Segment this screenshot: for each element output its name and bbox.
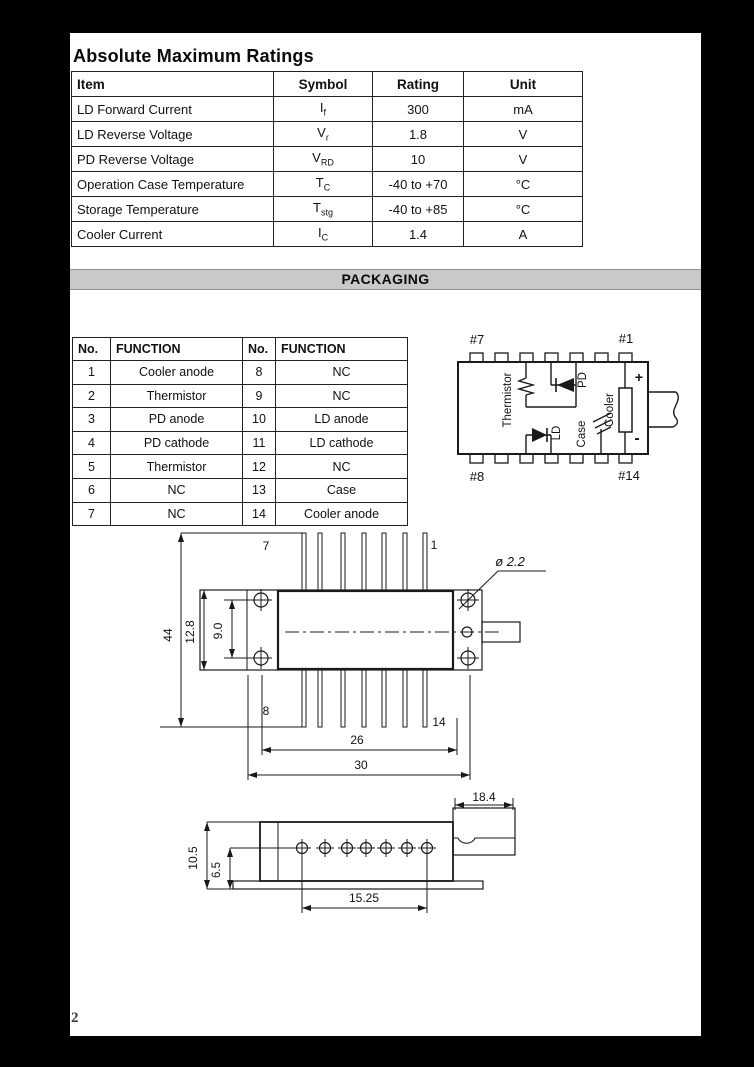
- pin-fn-cell: NC: [111, 502, 243, 526]
- cooler-plus-label: +: [635, 369, 643, 385]
- pin-function-table: No. FUNCTION No. FUNCTION 1 Cooler anode…: [72, 337, 408, 526]
- pin-no-cell: 2: [73, 384, 111, 408]
- pin-no-cell: 5: [73, 455, 111, 479]
- symbol-cell: TC: [274, 172, 373, 197]
- dimension-12-8: 12.8: [183, 590, 204, 670]
- dimension-15-25: 15.25: [302, 854, 427, 913]
- fiber-pigtail: [648, 392, 678, 427]
- ratings-header-symbol: Symbol: [274, 72, 373, 97]
- packaging-section-header: PACKAGING: [70, 269, 701, 290]
- pin-no-cell: 3: [73, 408, 111, 432]
- pin-no-cell: 4: [73, 431, 111, 455]
- dimension-26: 26: [262, 675, 457, 755]
- symbol-cell: IC: [274, 222, 373, 247]
- rating-cell: 1.4: [373, 222, 464, 247]
- unit-cell: °C: [464, 197, 583, 222]
- svg-text:9.0: 9.0: [211, 622, 225, 639]
- package-side-view-drawing: 18.4 10.5 6.5 15.25: [180, 788, 520, 918]
- pin-table-header-row: No. FUNCTION No. FUNCTION: [73, 338, 408, 361]
- ratings-title: Absolute Maximum Ratings: [73, 46, 314, 67]
- pin8-number-label: 8: [263, 704, 270, 718]
- table-row: LD Forward Current If 300 mA: [72, 97, 583, 122]
- package-top-view-drawing: 7 1 8 14 44 12.8 9.0 ø 2.2 2: [160, 525, 550, 785]
- dimension-18-4: 18.4: [455, 790, 513, 810]
- pin-header-no2: No.: [243, 338, 276, 361]
- document-page: Absolute Maximum Ratings Item Symbol Rat…: [70, 33, 701, 1036]
- pin-no-cell: 1: [73, 361, 111, 385]
- pin-fn-cell: Thermistor: [111, 384, 243, 408]
- pin-no-cell: 6: [73, 478, 111, 502]
- pin-fn-cell: LD cathode: [276, 431, 408, 455]
- table-row: 7 NC 14 Cooler anode: [73, 502, 408, 526]
- pin-no-cell: 9: [243, 384, 276, 408]
- pin-fn-cell: NC: [276, 361, 408, 385]
- svg-text:15.25: 15.25: [349, 891, 379, 905]
- pin-fn-cell: PD anode: [111, 408, 243, 432]
- pin-fn-cell: NC: [111, 478, 243, 502]
- svg-text:26: 26: [350, 733, 364, 747]
- bottom-pins: [302, 669, 427, 727]
- item-cell: Operation Case Temperature: [72, 172, 274, 197]
- pin-fn-cell: NC: [276, 455, 408, 479]
- pin-no-cell: 11: [243, 431, 276, 455]
- pin1-number-label: 1: [431, 538, 438, 552]
- svg-text:44: 44: [161, 628, 175, 642]
- unit-cell: V: [464, 122, 583, 147]
- pin-header-fn1: FUNCTION: [111, 338, 243, 361]
- table-row: 2 Thermistor 9 NC: [73, 384, 408, 408]
- svg-text:6.5: 6.5: [211, 862, 223, 878]
- item-cell: LD Reverse Voltage: [72, 122, 274, 147]
- svg-text:30: 30: [354, 758, 368, 772]
- table-row: Operation Case Temperature TC -40 to +70…: [72, 172, 583, 197]
- dimension-9-0: 9.0: [211, 600, 252, 658]
- table-row: 5 Thermistor 12 NC: [73, 455, 408, 479]
- pin8-corner-label: #8: [470, 469, 484, 484]
- pd-label: PD: [577, 372, 589, 388]
- table-row: 4 PD cathode 11 LD cathode: [73, 431, 408, 455]
- svg-text:10.5: 10.5: [186, 846, 200, 870]
- unit-cell: mA: [464, 97, 583, 122]
- item-cell: PD Reverse Voltage: [72, 147, 274, 172]
- pin7-corner-label: #7: [470, 332, 484, 347]
- ratings-table: Item Symbol Rating Unit LD Forward Curre…: [71, 71, 583, 247]
- pin14-corner-label: #14: [618, 468, 640, 483]
- thermistor-label: Thermistor: [502, 372, 514, 427]
- table-row: 1 Cooler anode 8 NC: [73, 361, 408, 385]
- pinout-schematic-diagram: #7 #1 #8 #14 Thermistor PD LD: [450, 328, 700, 488]
- table-row: 6 NC 13 Case: [73, 478, 408, 502]
- dimension-6-5: 6.5: [211, 848, 296, 889]
- symbol-cell: Tstg: [274, 197, 373, 222]
- symbol-cell: VRD: [274, 147, 373, 172]
- dimension-hole-diameter: ø 2.2: [459, 554, 546, 609]
- svg-text:ø 2.2: ø 2.2: [495, 554, 525, 569]
- pin-no-cell: 14: [243, 502, 276, 526]
- unit-cell: °C: [464, 172, 583, 197]
- pin-no-cell: 12: [243, 455, 276, 479]
- pin-fn-cell: Thermistor: [111, 455, 243, 479]
- ld-diode-symbol: [526, 428, 551, 454]
- pin-no-cell: 8: [243, 361, 276, 385]
- snout-notch: [453, 838, 515, 843]
- cooler-label: Cooler: [604, 393, 616, 427]
- dimension-10-5: 10.5: [186, 822, 260, 889]
- ratings-header-rating: Rating: [373, 72, 464, 97]
- pin-fn-cell: Case: [276, 478, 408, 502]
- page-number: 2: [71, 1010, 79, 1027]
- unit-cell: V: [464, 147, 583, 172]
- pin14-number-label: 14: [432, 715, 446, 729]
- ratings-header-row: Item Symbol Rating Unit: [72, 72, 583, 97]
- item-cell: Cooler Current: [72, 222, 274, 247]
- pin-fn-cell: PD cathode: [111, 431, 243, 455]
- pin-no-cell: 13: [243, 478, 276, 502]
- item-cell: Storage Temperature: [72, 197, 274, 222]
- rating-cell: -40 to +70: [373, 172, 464, 197]
- rating-cell: 10: [373, 147, 464, 172]
- ratings-header-unit: Unit: [464, 72, 583, 97]
- svg-text:18.4: 18.4: [472, 790, 496, 804]
- pin-header-no1: No.: [73, 338, 111, 361]
- pin-fn-cell: NC: [276, 384, 408, 408]
- table-row: 3 PD anode 10 LD anode: [73, 408, 408, 432]
- ratings-header-item: Item: [72, 72, 274, 97]
- svg-text:12.8: 12.8: [183, 620, 197, 644]
- cooler-element-symbol: [619, 362, 632, 454]
- top-pins: [302, 533, 427, 591]
- symbol-cell: If: [274, 97, 373, 122]
- pin1-corner-label: #1: [619, 331, 633, 346]
- item-cell: LD Forward Current: [72, 97, 274, 122]
- pin-header-fn2: FUNCTION: [276, 338, 408, 361]
- case-label: Case: [576, 421, 588, 448]
- table-row: PD Reverse Voltage VRD 10 V: [72, 147, 583, 172]
- pin-fn-cell: LD anode: [276, 408, 408, 432]
- mounting-hole: [250, 589, 479, 669]
- rating-cell: 300: [373, 97, 464, 122]
- scanned-datasheet-page: { "ratings": { "title": "Absolute Maximu…: [0, 0, 754, 1067]
- rating-cell: -40 to +85: [373, 197, 464, 222]
- rating-cell: 1.8: [373, 122, 464, 147]
- symbol-cell: Vr: [274, 122, 373, 147]
- pin7-number-label: 7: [263, 539, 270, 553]
- pin-fn-cell: Cooler anode: [111, 361, 243, 385]
- pin-no-cell: 7: [73, 502, 111, 526]
- ld-label: LD: [551, 426, 563, 441]
- pin-no-cell: 10: [243, 408, 276, 432]
- pd-diode-symbol: [551, 362, 576, 392]
- side-view-pins: [293, 839, 436, 857]
- pin-fn-cell: Cooler anode: [276, 502, 408, 526]
- table-row: Cooler Current IC 1.4 A: [72, 222, 583, 247]
- table-row: Storage Temperature Tstg -40 to +85 °C: [72, 197, 583, 222]
- unit-cell: A: [464, 222, 583, 247]
- cooler-minus-label: -: [634, 430, 639, 447]
- table-row: LD Reverse Voltage Vr 1.8 V: [72, 122, 583, 147]
